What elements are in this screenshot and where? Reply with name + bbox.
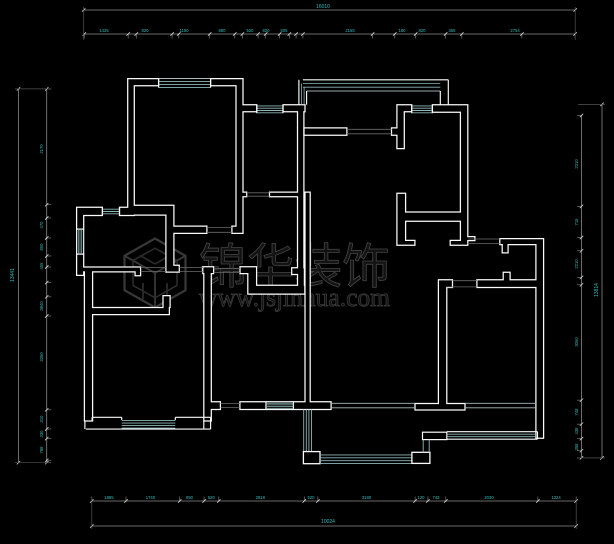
- svg-text:2155: 2155: [345, 28, 355, 33]
- svg-text:1885: 1885: [104, 495, 114, 500]
- svg-text:743: 743: [433, 495, 441, 500]
- svg-text:950: 950: [186, 495, 194, 500]
- svg-text:10024: 10024: [321, 519, 335, 525]
- svg-text:438: 438: [574, 427, 579, 435]
- svg-text:310: 310: [39, 415, 44, 423]
- svg-text:748: 748: [574, 408, 579, 416]
- svg-text:850: 850: [39, 243, 44, 251]
- svg-text:330: 330: [39, 430, 44, 438]
- svg-text:3840: 3840: [39, 301, 44, 311]
- svg-text:3060: 3060: [574, 337, 579, 347]
- svg-text:520: 520: [208, 495, 216, 500]
- svg-text:820: 820: [419, 28, 427, 33]
- svg-text:470: 470: [39, 221, 44, 229]
- svg-text:120: 120: [418, 495, 426, 500]
- svg-text:16010: 16010: [316, 4, 330, 10]
- svg-text:520: 520: [247, 28, 255, 33]
- svg-text:1425: 1425: [99, 28, 109, 33]
- svg-text:13441: 13441: [10, 268, 16, 282]
- svg-text:2754: 2754: [510, 28, 520, 33]
- svg-text:2170: 2170: [39, 144, 44, 154]
- svg-text:2210: 2210: [574, 259, 579, 269]
- svg-text:715: 715: [574, 218, 579, 226]
- svg-text:2310: 2310: [574, 159, 579, 169]
- svg-text:3350: 3350: [39, 352, 44, 362]
- svg-text:505: 505: [281, 28, 289, 33]
- svg-text:1150: 1150: [179, 28, 189, 33]
- svg-text:455: 455: [39, 262, 44, 270]
- svg-text:1324: 1324: [551, 495, 561, 500]
- svg-text:13814: 13814: [594, 283, 600, 297]
- svg-text:2030: 2030: [484, 495, 494, 500]
- svg-text:355: 355: [449, 28, 457, 33]
- svg-text:788: 788: [39, 446, 44, 454]
- svg-text:880: 880: [219, 28, 227, 33]
- svg-text:820: 820: [142, 28, 150, 33]
- svg-text:358: 358: [574, 443, 579, 451]
- svg-text:1740: 1740: [146, 495, 156, 500]
- svg-text:520: 520: [308, 495, 316, 500]
- svg-text:820: 820: [263, 28, 271, 33]
- svg-text:180: 180: [399, 28, 407, 33]
- svg-text:3180: 3180: [362, 495, 372, 500]
- svg-text:2818: 2818: [256, 495, 266, 500]
